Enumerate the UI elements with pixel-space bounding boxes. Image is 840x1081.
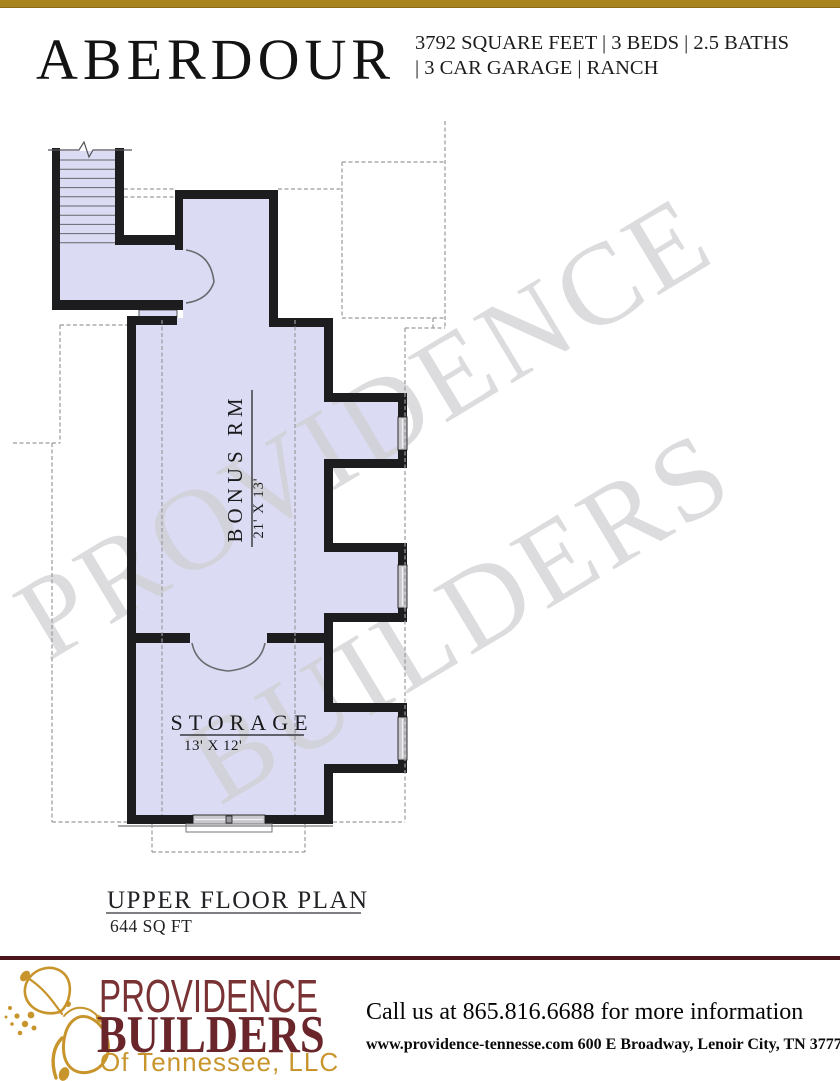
storage-window <box>186 815 272 832</box>
contact-phone-text: Call us at 865.816.6688 for more informa… <box>366 999 803 1026</box>
caption-title: UPPER FLOOR PLAN <box>107 887 369 914</box>
footer-rule <box>0 956 840 960</box>
dormer-window-2 <box>398 565 407 608</box>
bonus-room-label: BONUS RM <box>223 393 247 542</box>
storage-label: STORAGE <box>170 710 313 735</box>
storage-dims: 13' X 12' <box>184 738 242 754</box>
bonus-room-dims: 21' X 13' <box>251 478 267 539</box>
caption-area: 644 SQ FT <box>110 916 192 936</box>
upper-floor-plan-drawing: PROVIDENCE BUILDERS <box>0 0 840 1081</box>
dormer-window-3 <box>398 717 407 760</box>
plan-caption: UPPER FLOOR PLAN 644 SQ FT <box>106 887 369 936</box>
flyer-page: ABERDOUR 3792 SQUARE FEET | 3 BEDS | 2.5… <box>0 0 840 1081</box>
contact-address-text: www.providence-tennesse.com 600 E Broadw… <box>366 1036 840 1054</box>
logo-tennessee-text: Of Tennessee, LLC <box>100 1047 339 1078</box>
dormer-window-1 <box>398 417 407 450</box>
